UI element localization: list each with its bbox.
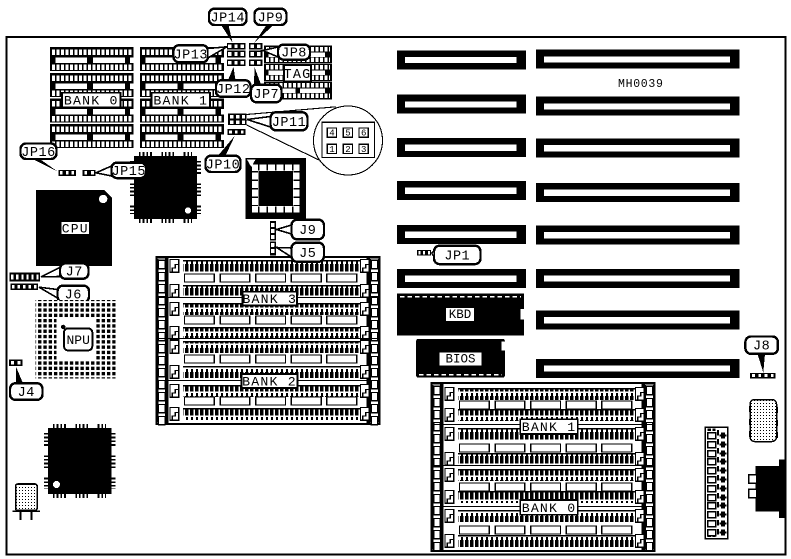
svg-text:JP10: JP10	[206, 158, 240, 173]
svg-text:BANK 3: BANK 3	[242, 292, 297, 307]
svg-text:JP1: JP1	[444, 250, 470, 265]
svg-text:BANK 2: BANK 2	[242, 374, 297, 389]
svg-text:6: 6	[361, 129, 366, 139]
svg-text:J8: J8	[753, 340, 770, 355]
svg-text:BANK 1: BANK 1	[522, 420, 577, 435]
svg-text:BANK 0: BANK 0	[64, 94, 119, 109]
svg-text:1: 1	[329, 145, 334, 155]
svg-text:JP9: JP9	[258, 11, 284, 26]
svg-text:J5: J5	[299, 247, 316, 262]
svg-text:JP7: JP7	[253, 88, 279, 103]
svg-text:JP8: JP8	[281, 47, 307, 62]
svg-text:3: 3	[361, 145, 366, 155]
svg-text:JP15: JP15	[112, 165, 146, 180]
svg-text:CPU: CPU	[62, 221, 89, 236]
svg-text:J9: J9	[299, 224, 316, 239]
svg-text:NPU: NPU	[66, 333, 89, 348]
svg-text:4: 4	[329, 129, 334, 139]
svg-text:JP11: JP11	[272, 116, 306, 131]
svg-text:JP16: JP16	[21, 146, 55, 161]
svg-text:MH0039: MH0039	[618, 78, 664, 91]
svg-text:J7: J7	[66, 266, 83, 281]
svg-text:5: 5	[345, 129, 350, 139]
svg-text:BANK 0: BANK 0	[522, 501, 577, 516]
svg-text:JP12: JP12	[216, 83, 250, 98]
svg-text:TAG: TAG	[284, 68, 312, 83]
svg-text:J4: J4	[18, 386, 35, 401]
svg-text:2: 2	[345, 145, 350, 155]
svg-text:JP14: JP14	[211, 11, 245, 26]
svg-text:BANK 1: BANK 1	[153, 94, 208, 109]
svg-text:BIOS: BIOS	[445, 353, 475, 367]
svg-text:KBD: KBD	[449, 308, 472, 322]
svg-text:JP13: JP13	[174, 48, 208, 63]
